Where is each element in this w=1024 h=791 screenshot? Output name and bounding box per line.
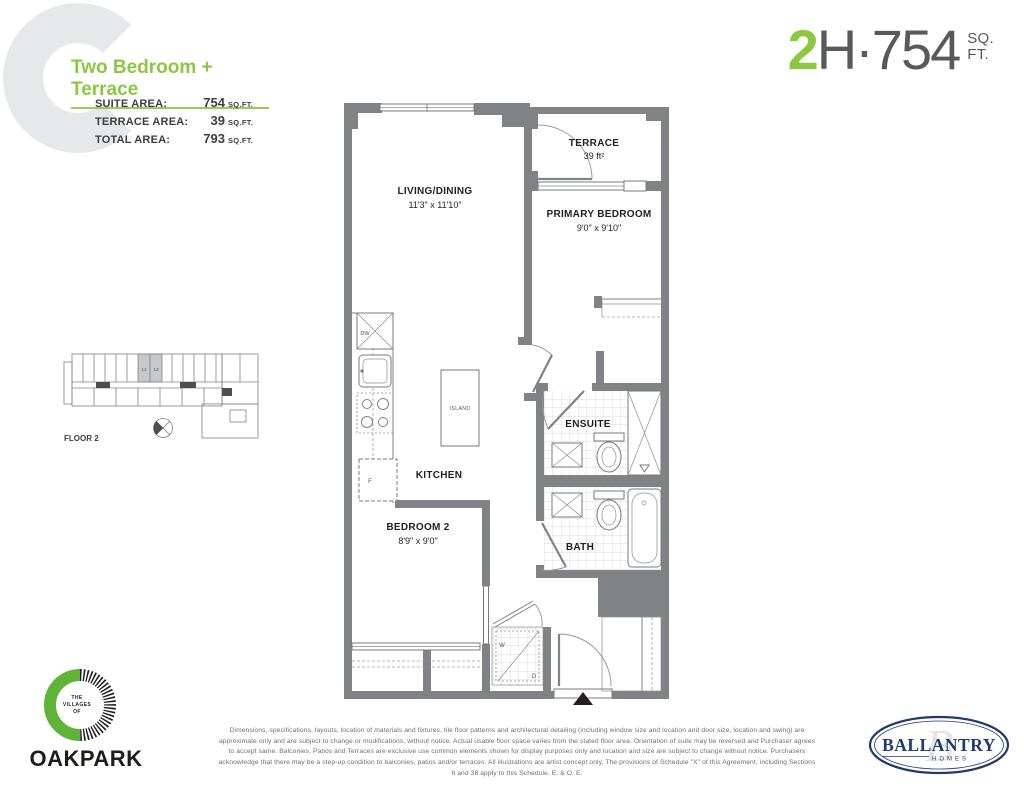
primary-closet <box>602 299 661 317</box>
bedroom2-dims: 8'9" x 9'0" <box>398 536 437 546</box>
suite-area-value: 754 <box>193 95 225 110</box>
living-label: LIVING/DINING <box>397 186 472 197</box>
oakpark-logo: THE VILLAGES OF OAKPARK <box>30 668 160 774</box>
kitchen-sink <box>359 355 391 387</box>
ballantry-homes: HOMES <box>932 757 969 763</box>
unit-plate: 2 H·754 SQ. FT. <box>788 22 994 78</box>
keyplan-unit-12-label: 12 <box>141 367 147 372</box>
kitchen-label: KITCHEN <box>416 470 463 481</box>
area-table: SUITE AREA: 754 SQ.FT. TERRACE AREA: 39 … <box>95 95 253 149</box>
dryer-label: D <box>532 674 537 680</box>
compass-icon <box>154 419 173 438</box>
sqft-ft: FT. <box>967 46 989 63</box>
total-area-unit: SQ.FT. <box>228 136 253 145</box>
bedroom2-label: BEDROOM 2 <box>386 522 449 533</box>
oakpark-name: OAKPARK <box>30 746 143 771</box>
total-area-label: TOTAL AREA: <box>95 134 193 146</box>
suite-area-unit: SQ.FT. <box>228 100 253 109</box>
unit-code: H·754 <box>817 22 960 78</box>
bathtub <box>628 489 661 567</box>
keyplan-unit-13-label: 13 <box>153 367 159 372</box>
unit-number: 2 <box>788 22 817 78</box>
primary-dims: 9'0" x 9'10" <box>577 223 621 233</box>
ensuite-label: ENSUITE <box>565 419 610 430</box>
washer-label: W <box>499 643 505 649</box>
island-label: ISLAND <box>449 406 470 412</box>
bath-label: BATH <box>566 542 594 553</box>
suite-area-row: SUITE AREA: 754 SQ.FT. <box>95 95 253 110</box>
terrace-area-row: TERRACE AREA: 39 SQ.FT. <box>95 113 253 128</box>
living-dims: 11'3" x 11'10" <box>408 200 461 210</box>
laundry-door <box>493 601 533 624</box>
terrace-dims: 39 ft² <box>584 151 605 161</box>
bedroom2-door <box>484 586 489 644</box>
oakpark-the: THE <box>71 695 82 701</box>
terrace-label: TERRACE <box>569 138 619 149</box>
ensuite-toilet <box>594 433 624 441</box>
bath-toilet <box>594 491 624 499</box>
total-area-row: TOTAL AREA: 793 SQ.FT. <box>95 131 253 146</box>
fridge-label: F <box>368 479 372 485</box>
terrace-area-label: TERRACE AREA: <box>95 116 193 128</box>
fridge <box>359 459 397 501</box>
floor-label: FLOOR 2 <box>64 434 99 443</box>
dishwasher-label: DW <box>360 331 370 337</box>
total-area-value: 793 <box>193 131 225 146</box>
ballantry-logo: B BALLANTRY HOMES <box>866 714 1016 778</box>
unit-sqft-label: SQ. FT. <box>967 31 994 63</box>
cooktop <box>357 393 393 433</box>
keyplan-building: 12 13 <box>64 354 258 438</box>
sqft-sq: SQ. <box>967 30 994 47</box>
keyplan: 12 13 FLOOR 2 <box>62 348 272 448</box>
floorplan: DW F ISLAND <box>340 93 675 711</box>
entry-door-arc <box>559 634 611 686</box>
brochure-page: Two Bedroom + Terrace SUITE AREA: 754 SQ… <box>0 0 1024 791</box>
oakpark-villages: VILLAGES <box>63 702 91 708</box>
disclaimer-text: Dimensions, specifications, layouts, loc… <box>217 726 817 780</box>
ballantry-name: BALLANTRY <box>882 735 996 755</box>
terrace-area-unit: SQ.FT. <box>228 118 253 127</box>
primary-label: PRIMARY BEDROOM <box>546 209 651 220</box>
oakpark-of: OF <box>73 709 81 715</box>
suite-area-label: SUITE AREA: <box>95 98 193 110</box>
terrace-area-value: 39 <box>193 113 225 128</box>
